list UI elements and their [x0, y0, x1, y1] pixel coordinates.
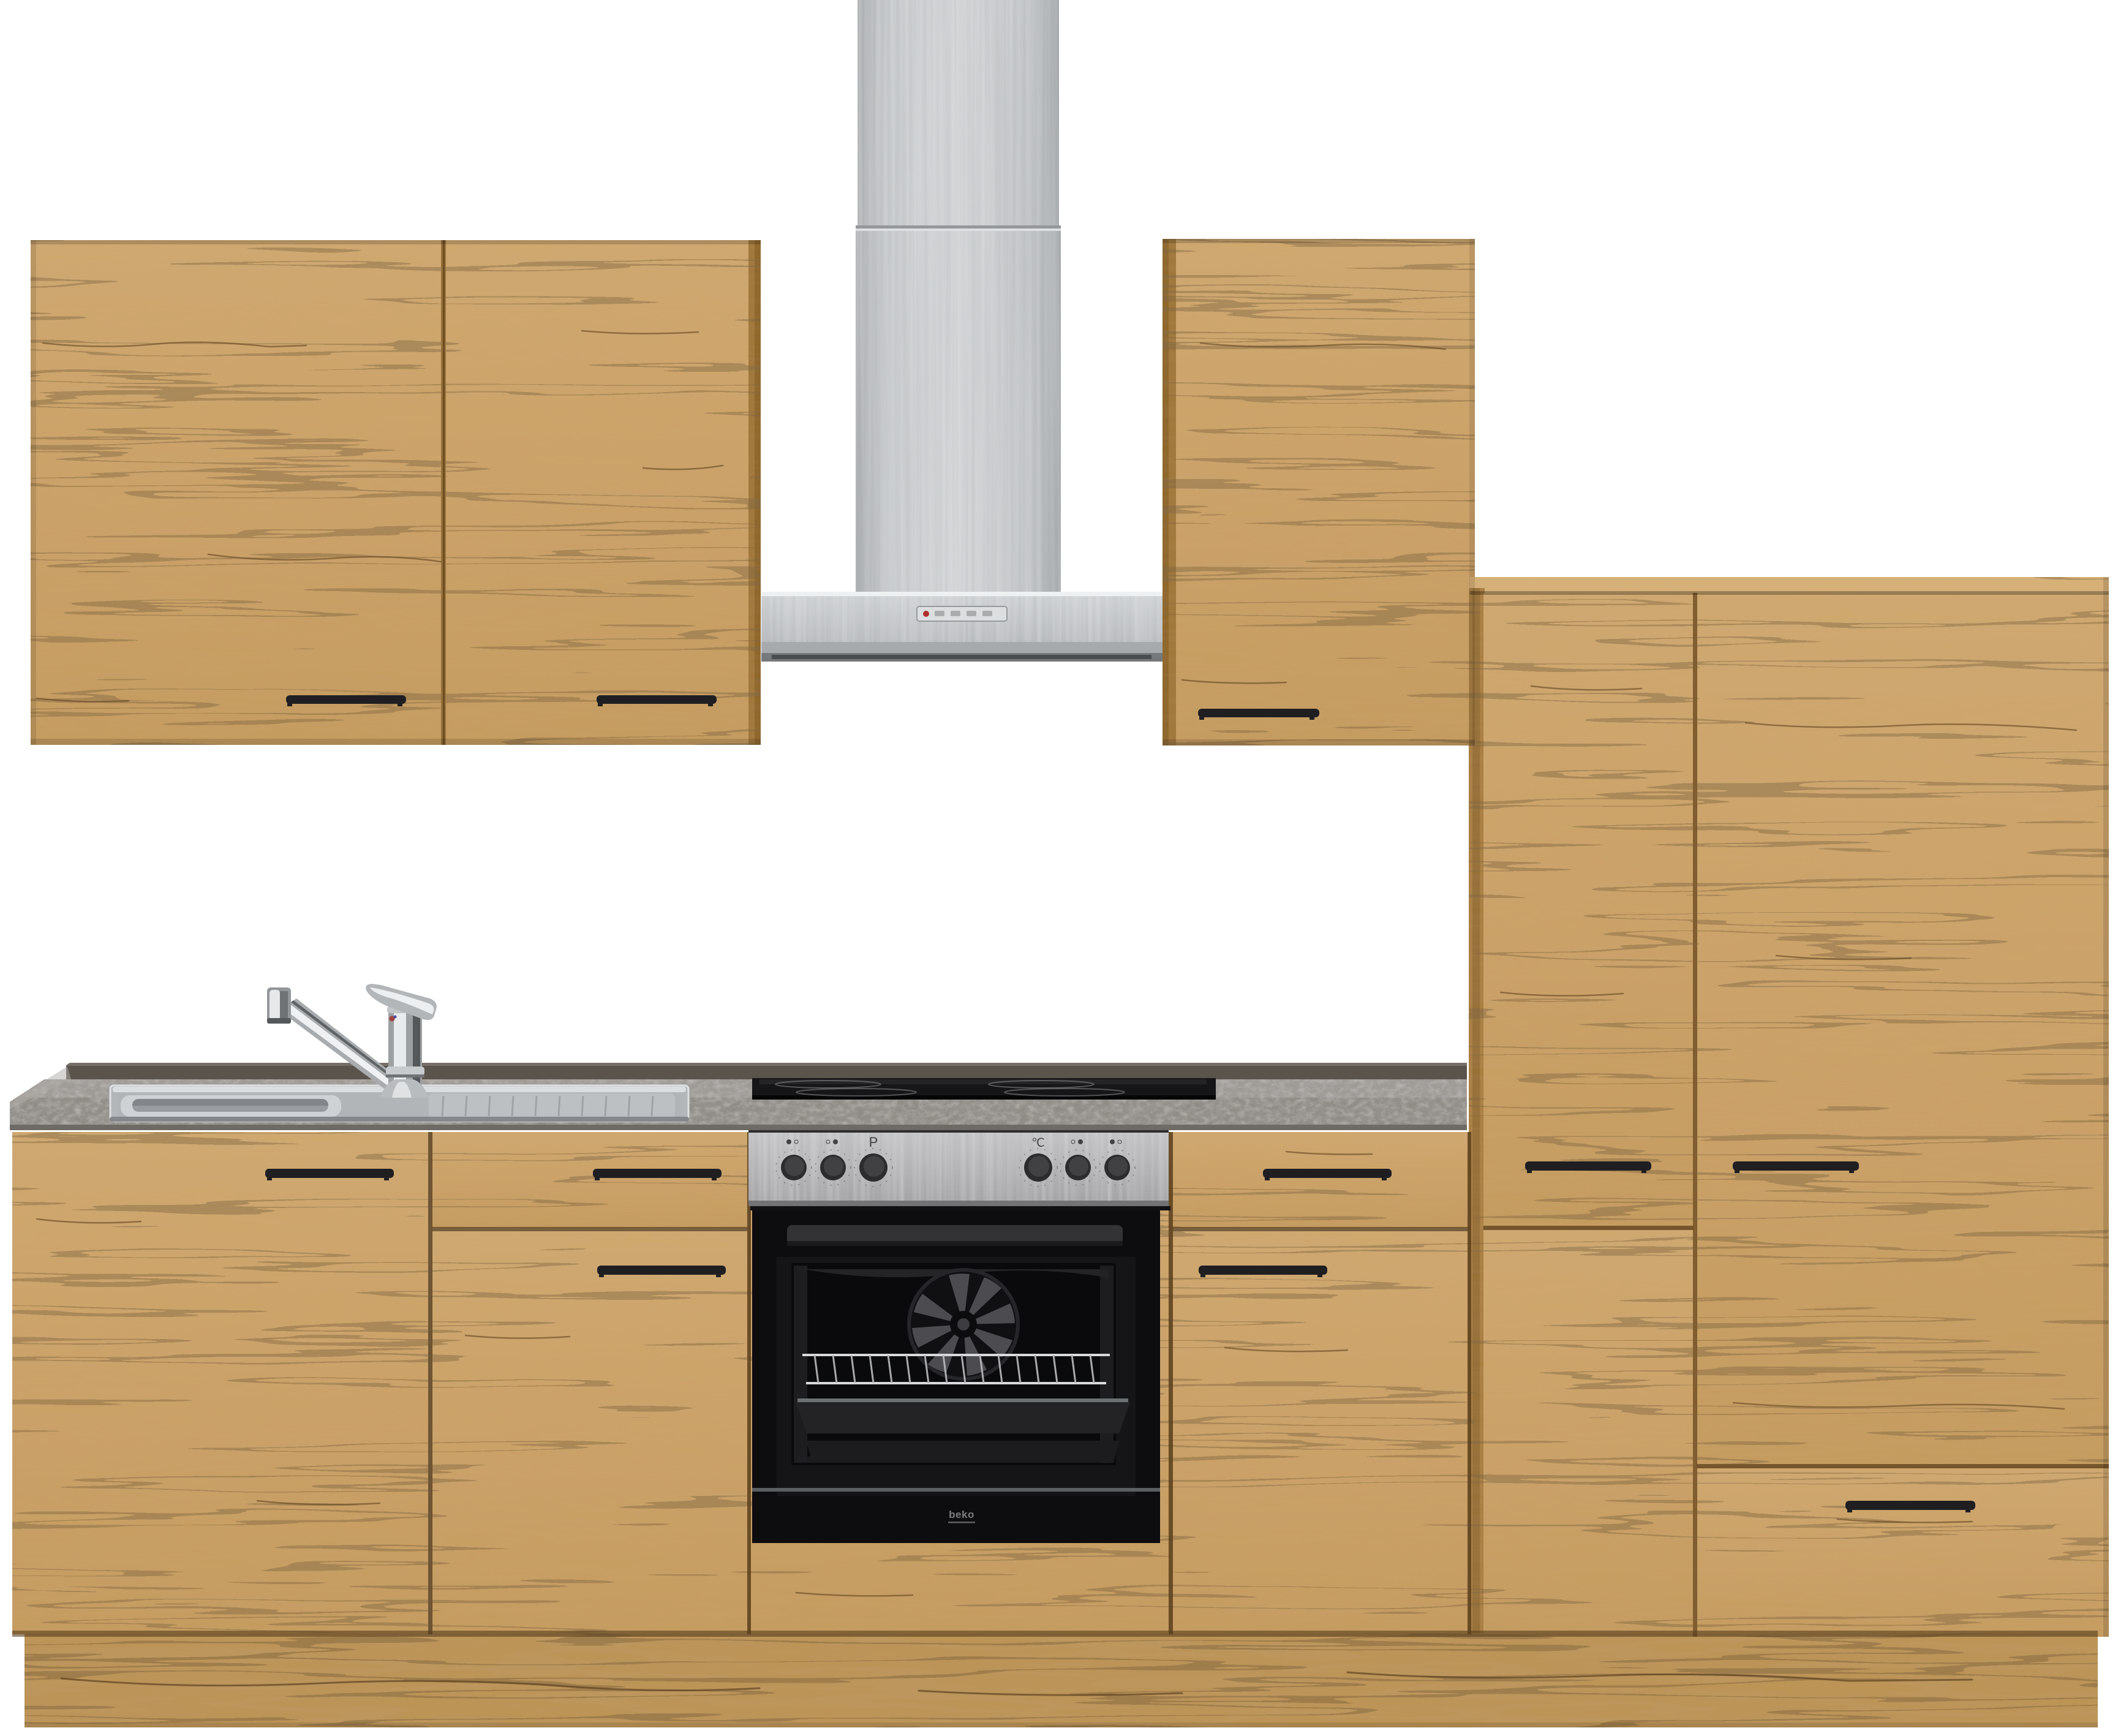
svg-text:℃: ℃: [1031, 1137, 1044, 1150]
svg-text:beko: beko: [949, 1509, 974, 1520]
svg-text:P: P: [869, 1134, 878, 1150]
